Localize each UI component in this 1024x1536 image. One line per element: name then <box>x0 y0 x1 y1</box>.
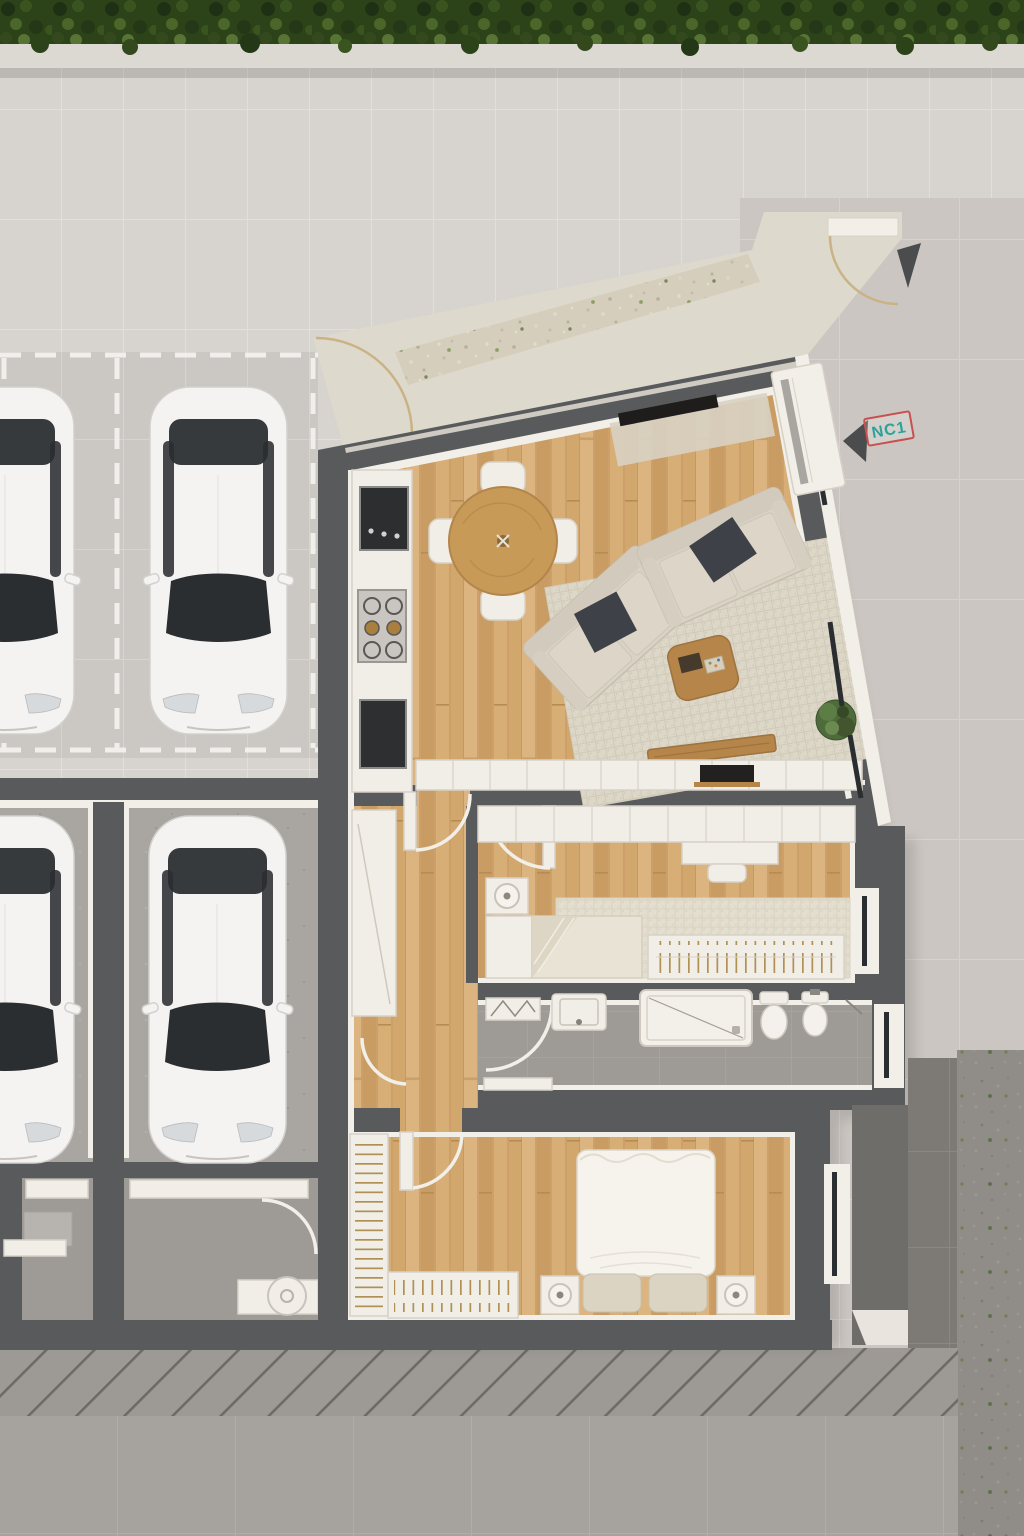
faucet-knob <box>368 528 373 533</box>
car-parked-left <box>0 387 82 734</box>
hedge-planter <box>0 0 1024 78</box>
lower-pavement <box>0 1416 958 1536</box>
divider-lining-left <box>88 806 93 1158</box>
floorplan-render: NC1 <box>0 0 1024 1536</box>
pillow <box>649 1274 707 1312</box>
burner <box>387 621 401 635</box>
shower-tray <box>640 990 752 1046</box>
tv-on-sideboard <box>700 765 754 782</box>
drying-rack <box>486 998 540 1020</box>
utility-shelf-1 <box>26 1180 88 1198</box>
bidet <box>802 989 828 1036</box>
sideboard <box>416 760 862 790</box>
bathroom-bottom-wall <box>478 1090 872 1110</box>
parapet <box>852 1105 908 1345</box>
kitchen <box>352 470 412 792</box>
desk-chair <box>708 864 746 882</box>
speckled-pavement <box>957 1050 1024 1536</box>
bedroom-window-glass <box>862 896 867 966</box>
bathroom-window-glass <box>884 1012 889 1078</box>
ramp-hatching <box>0 1348 958 1416</box>
bed-frame <box>486 916 532 978</box>
master-top-wall <box>462 1108 830 1132</box>
master-top-wall-stub <box>348 1108 400 1132</box>
hall-bedroom-divider <box>466 806 478 983</box>
washbasin <box>552 994 606 1030</box>
clothes-rail-bottom <box>388 1272 518 1318</box>
dark-terrace-tiles <box>908 1058 957 1348</box>
master-window-glass <box>832 1172 837 1276</box>
door-leaf <box>484 1078 552 1090</box>
pillow <box>583 1274 641 1312</box>
burner <box>365 621 379 635</box>
utility-shelf-2 <box>130 1180 308 1198</box>
door-leaf <box>404 792 416 850</box>
divider-lining-right <box>124 806 129 1158</box>
gate-leaf-right <box>828 218 898 236</box>
utility-shelf-3 <box>4 1240 66 1256</box>
floorplan-canvas: NC1 <box>0 0 1024 1536</box>
door-leaf <box>400 1132 413 1190</box>
garage-top-wall <box>0 778 348 802</box>
car-garage-right <box>141 816 294 1163</box>
car-garage-left <box>0 816 82 1163</box>
wardrobe-hangers-left <box>350 1134 388 1316</box>
planter-ledge <box>0 40 1024 68</box>
water-heater <box>268 1277 306 1315</box>
kitchen-sink-module <box>360 487 408 550</box>
wardrobe-row <box>478 806 855 842</box>
hedge <box>0 0 1024 44</box>
garage-bottom-wall <box>0 1162 318 1178</box>
tv-shelf <box>694 782 760 787</box>
toilet <box>760 992 788 1039</box>
faucet-knob <box>381 531 386 536</box>
garage-divider-wall <box>93 802 124 1322</box>
desk <box>682 842 778 864</box>
kitchen-appliance-module <box>360 700 406 768</box>
potted-plant <box>816 700 856 740</box>
parking-area <box>0 355 318 750</box>
garage-top-lining <box>0 800 318 808</box>
car-parked-right <box>142 387 295 734</box>
faucet-knob <box>394 533 399 538</box>
clothes-rail <box>648 935 844 979</box>
